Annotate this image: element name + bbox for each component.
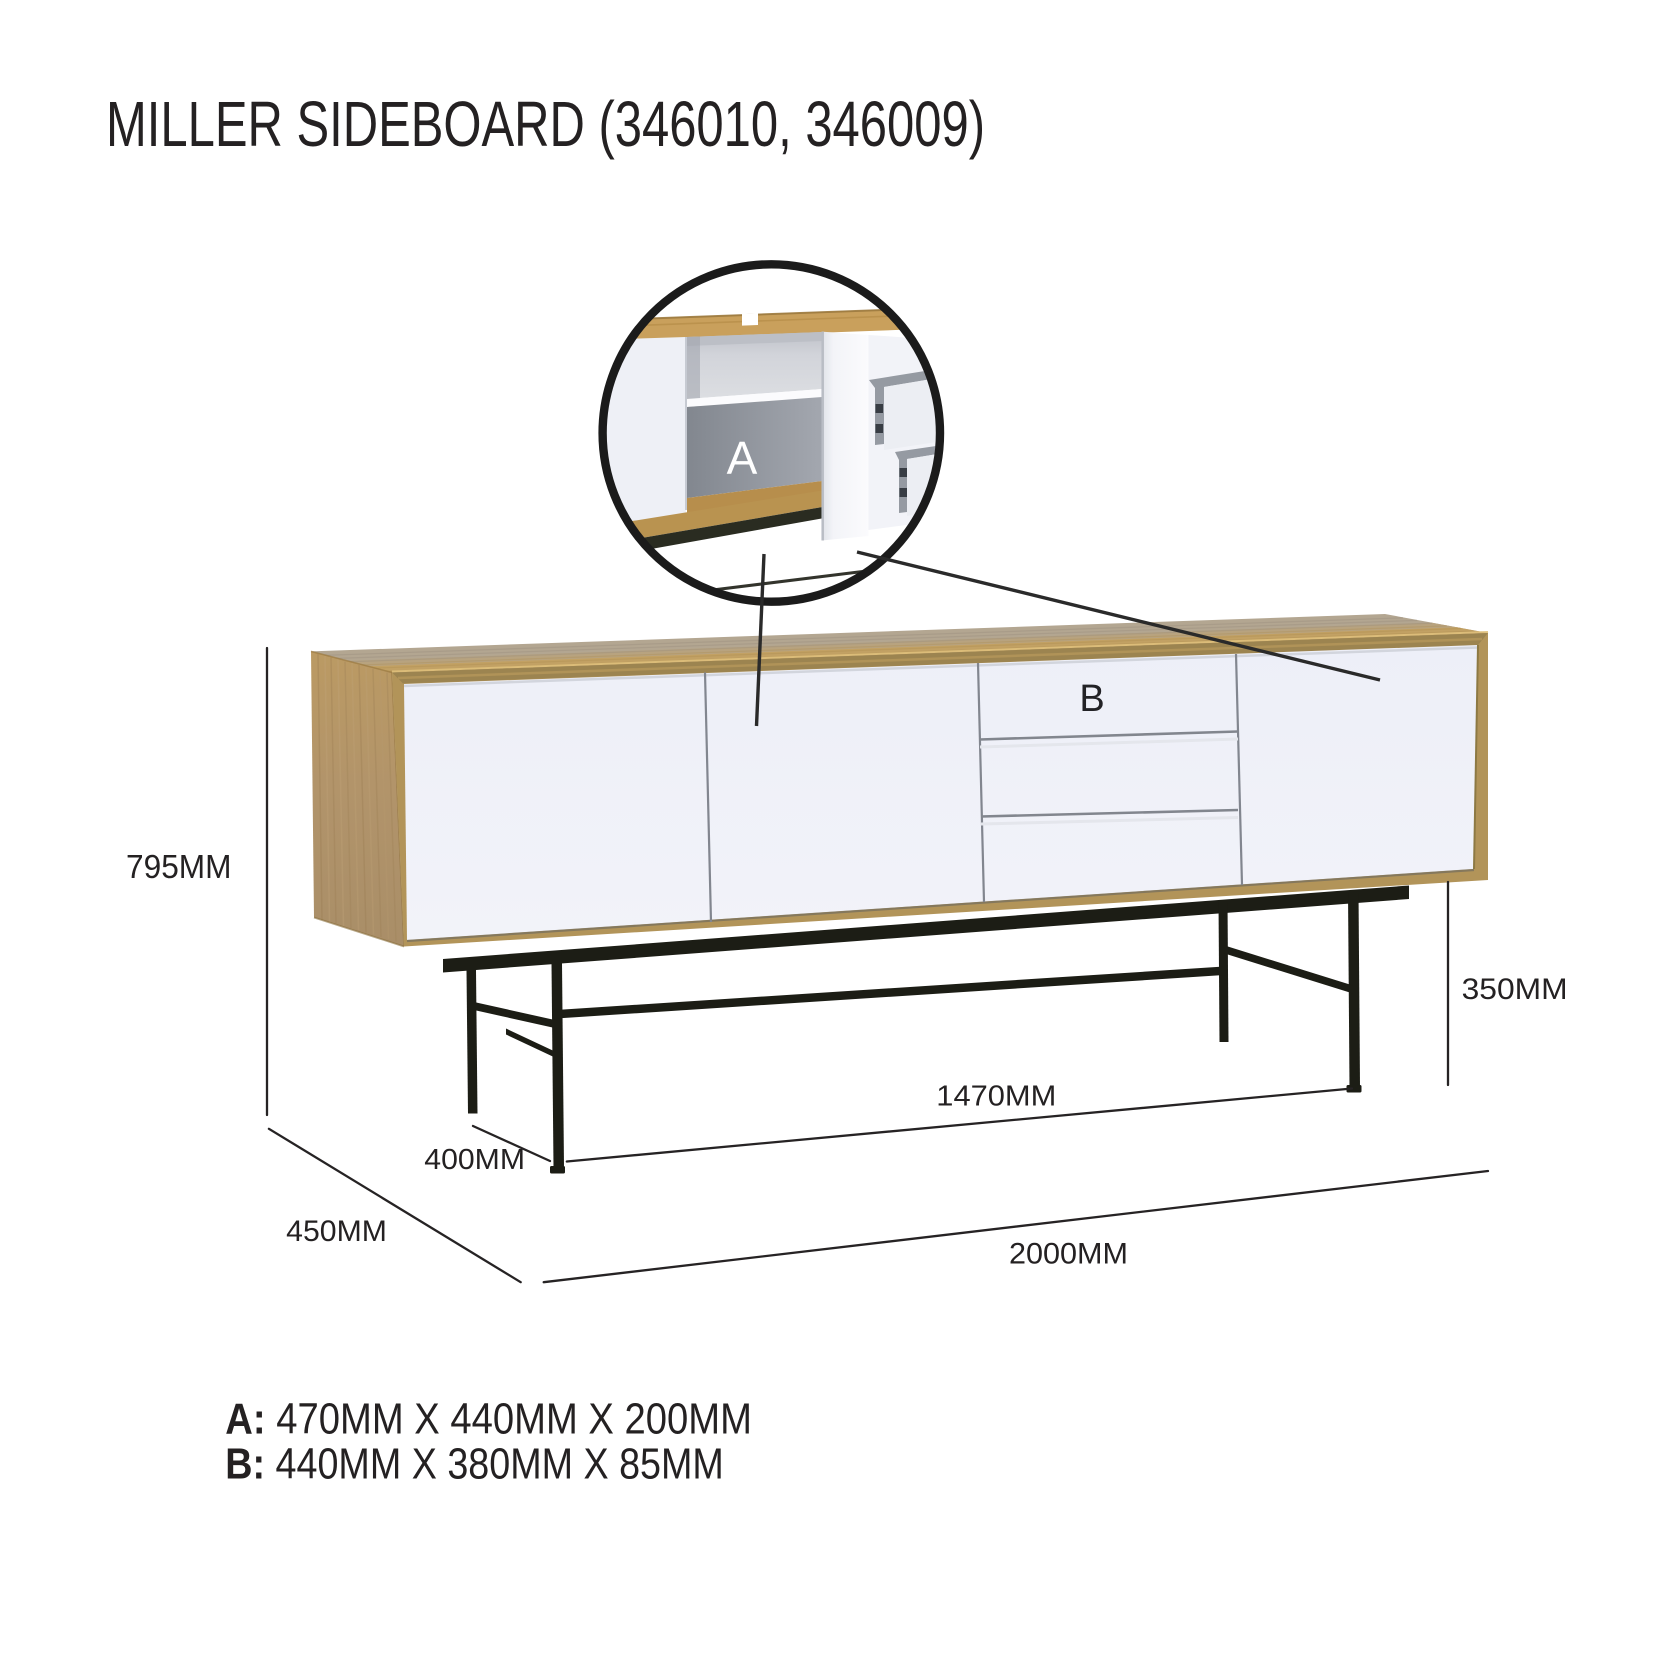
svg-text:A: 470MM X 440MM X 200MM: A: 470MM X 440MM X 200MM xyxy=(225,1394,752,1443)
svg-text:MILLER SIDEBOARD (346010, 3460: MILLER SIDEBOARD (346010, 346009) xyxy=(106,88,985,160)
svg-text:350MM: 350MM xyxy=(1462,973,1568,1006)
svg-text:1470MM: 1470MM xyxy=(936,1080,1056,1112)
svg-text:450MM: 450MM xyxy=(286,1215,387,1248)
svg-text:A: A xyxy=(727,432,758,484)
svg-text:B: 440MM X 380MM X 85MM: B: 440MM X 380MM X 85MM xyxy=(225,1440,724,1489)
svg-text:B: B xyxy=(1079,678,1104,720)
svg-text:2000MM: 2000MM xyxy=(1009,1238,1128,1271)
svg-text:795MM: 795MM xyxy=(126,848,232,885)
svg-text:400MM: 400MM xyxy=(424,1144,525,1176)
